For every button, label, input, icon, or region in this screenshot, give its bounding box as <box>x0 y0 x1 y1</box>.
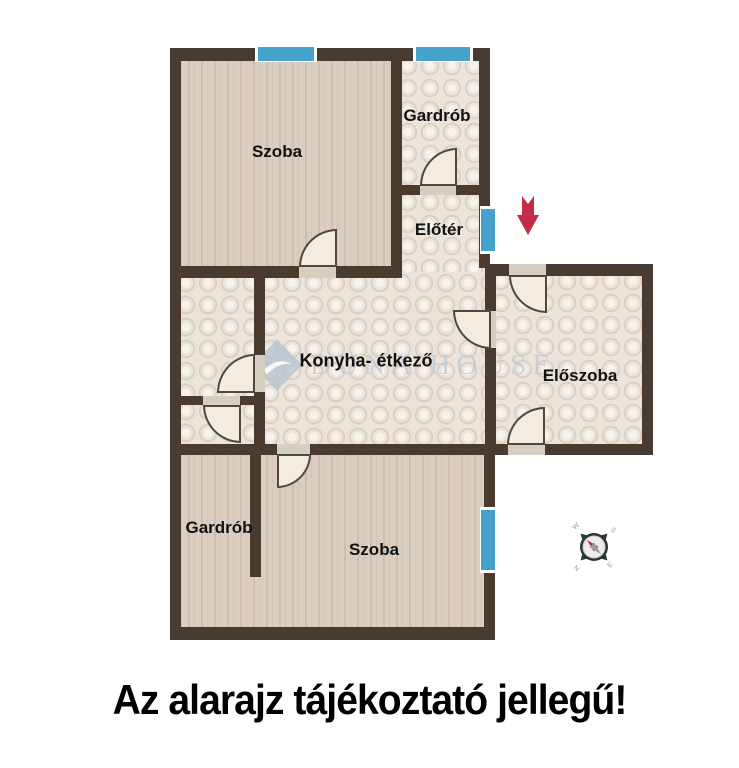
room-floor-szoba-top <box>175 55 397 273</box>
wall <box>250 444 261 577</box>
compass-letter-nw: W <box>571 522 581 532</box>
floor-plan: DUNA HOUSE ® Szoba Gardrób Előtér Konyha… <box>0 0 739 768</box>
wall <box>391 48 402 278</box>
door-threshold <box>203 396 240 405</box>
disclaimer-text: Az alarajz tájékoztató jellegű! <box>26 676 713 724</box>
door-threshold <box>254 355 265 392</box>
wall <box>170 48 181 640</box>
compass-letter-se: E <box>606 561 614 569</box>
room-label-eloszoba: Előszoba <box>543 366 618 386</box>
compass-letter-ne: S <box>609 526 617 534</box>
room-label-szoba-bottom: Szoba <box>349 540 399 560</box>
window <box>480 206 496 254</box>
room-label-szoba-top: Szoba <box>252 142 302 162</box>
wall <box>485 264 496 455</box>
wall <box>170 444 653 455</box>
compass-icon: W S N E <box>566 519 622 580</box>
window <box>480 507 496 573</box>
door-threshold <box>420 185 456 195</box>
window <box>413 46 473 62</box>
room-label-gardrob-bottom: Gardrób <box>185 518 252 538</box>
room-label-konyha: Konyha- étkező <box>299 351 432 372</box>
entrance-arrow-icon <box>517 196 539 241</box>
room-label-gardrob-top: Gardrób <box>403 106 470 126</box>
wall <box>642 264 653 455</box>
door-threshold <box>508 444 545 455</box>
room-label-eloter: Előtér <box>415 220 463 240</box>
wall <box>170 266 402 278</box>
window <box>255 46 317 62</box>
room-floor-szoba-bottom <box>175 450 490 634</box>
wall <box>170 627 495 640</box>
door-threshold <box>299 266 336 278</box>
compass-letter-sw: N <box>572 564 581 573</box>
